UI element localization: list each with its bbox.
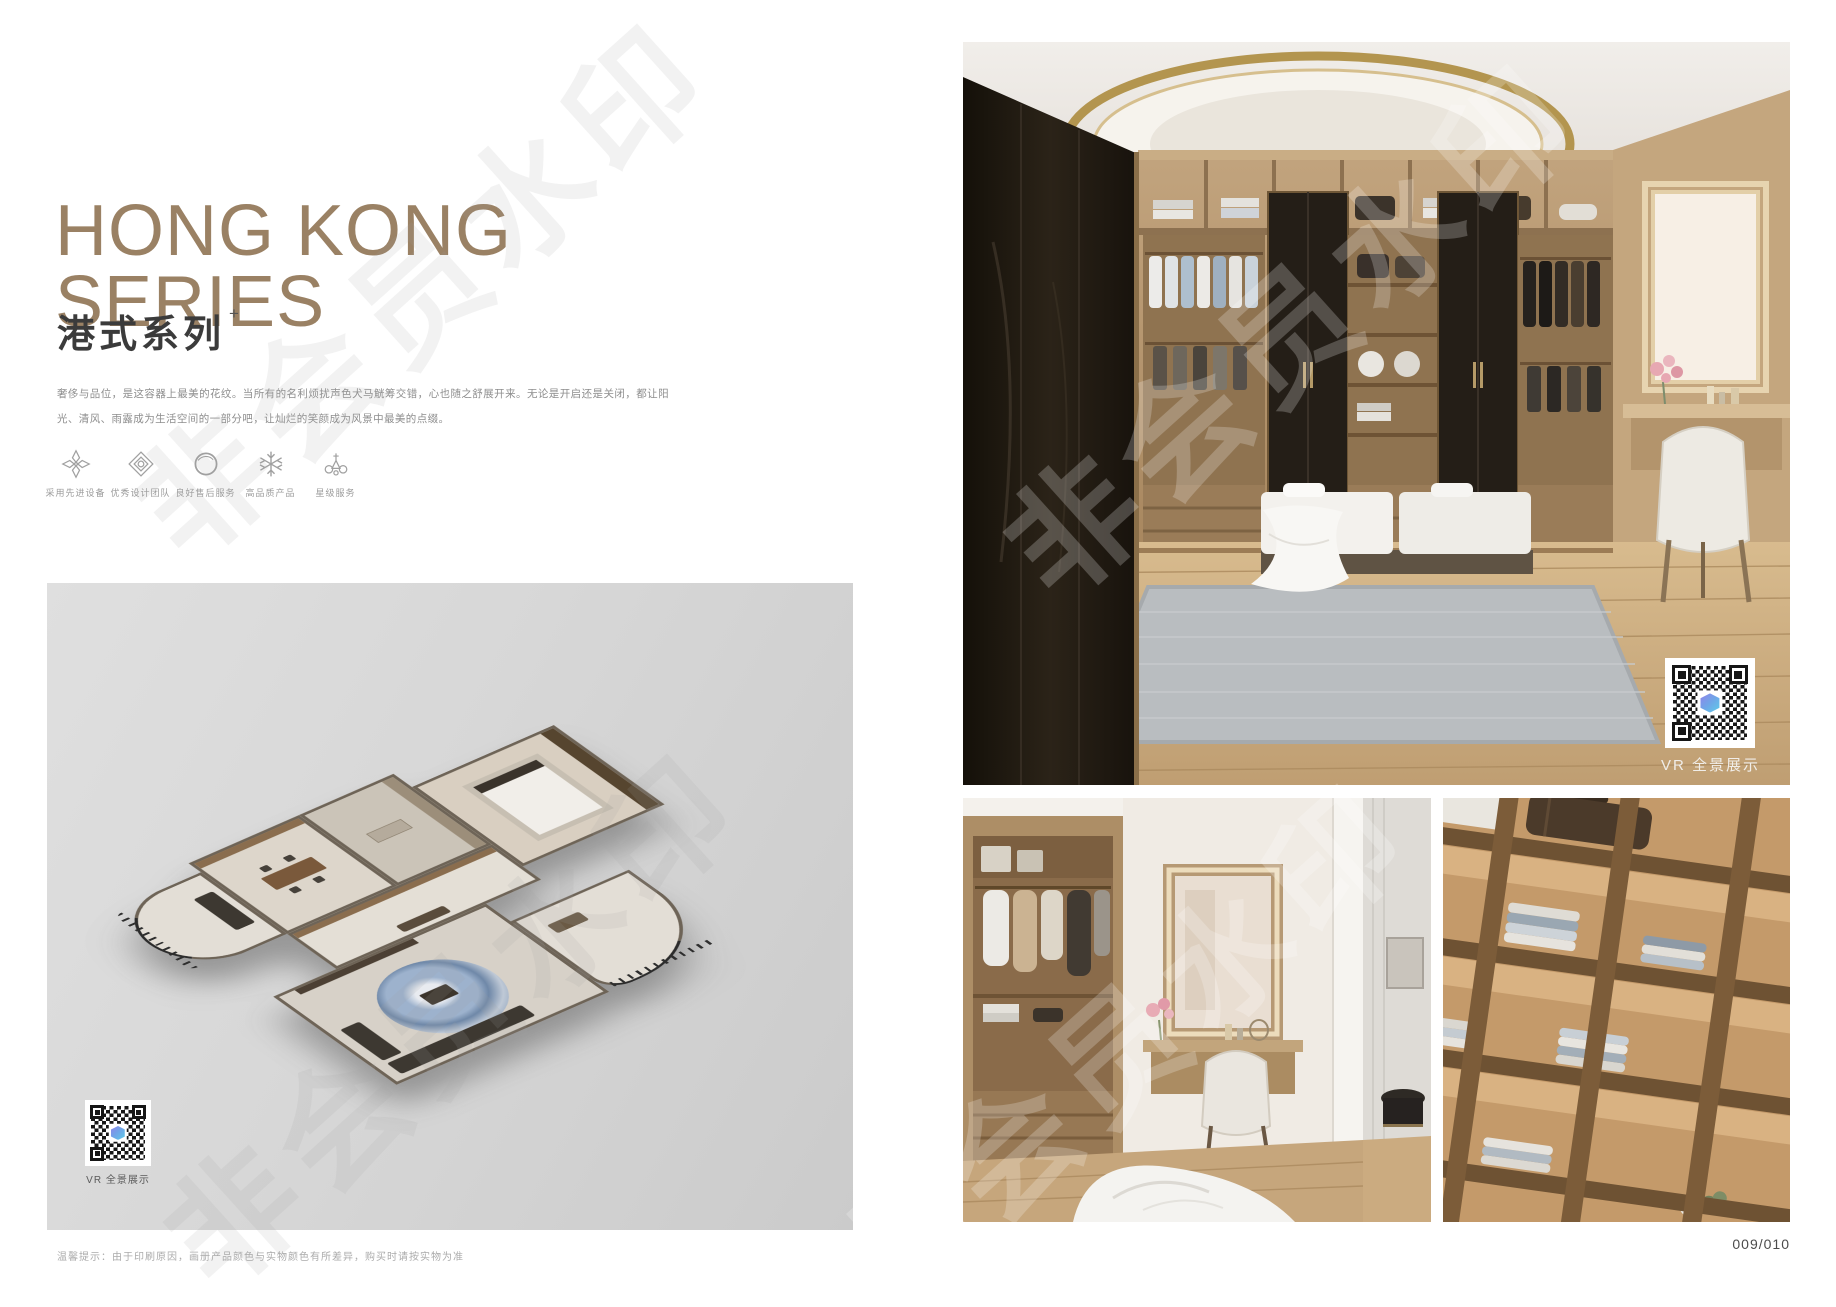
- photo-vanity-corner: [963, 798, 1431, 1222]
- footer-tip: 温馨提示：由于印刷原因，画册产品颜色与实物颜色有所差异，购买时请按实物为准: [57, 1248, 464, 1263]
- feature-after-sales-service: 良好售后服务: [173, 449, 238, 499]
- catalog-page: HONG KONG SERIES 港式系列+ 奢侈与品位，是这容器上最美的花纹。…: [0, 0, 1836, 1307]
- handbag: [1395, 256, 1425, 278]
- feature-label: 采用先进设备: [45, 486, 105, 499]
- dark-glass-wardrobe: [963, 77, 1138, 785]
- isometric-floorplan: [88, 707, 806, 1098]
- closet-drawers: [973, 1091, 1113, 1161]
- feature-list: 采用先进设备 优秀设计团队 良好售后服务 高品质产品: [43, 449, 368, 499]
- hanging-coats: [1523, 261, 1600, 327]
- vr-panorama-label: VR 全景展示: [1661, 754, 1781, 775]
- floorplan-vr-qr-code: [85, 1100, 151, 1166]
- feature-high-quality: 高品质产品: [238, 449, 303, 499]
- balcony-railing: [609, 938, 717, 987]
- shelf-closeup-scene: [1443, 798, 1790, 1222]
- vanity-mirror: [1653, 192, 1758, 382]
- vanity-corner-scene: [963, 798, 1431, 1222]
- feature-label: 良好售后服务: [175, 486, 235, 499]
- feature-label: 高品质产品: [245, 486, 295, 499]
- gallery-vr-qr-code: [1665, 658, 1755, 748]
- feature-label: 星级服务: [315, 486, 355, 499]
- ornament-diamond-icon: [126, 449, 156, 479]
- crown-icon: [321, 449, 351, 479]
- vanity-desk: [1143, 1040, 1303, 1052]
- hanging-shirts: [1149, 256, 1258, 308]
- wood-shelf-grid: [1443, 798, 1790, 1222]
- feature-advanced-equipment: 采用先进设备: [43, 449, 108, 499]
- balcony-railing: [114, 913, 197, 971]
- series-description: 奢侈与品位，是这容器上最美的花纹。当所有的名利烦扰声色犬马觥筹交错，心也随之舒展…: [57, 382, 669, 432]
- title-line-1: HONG KONG: [55, 196, 512, 267]
- vr-panorama-label: VR 全景展示: [75, 1171, 161, 1186]
- feature-label: 优秀设计团队: [110, 486, 170, 499]
- ornament-petal-icon: [61, 449, 91, 479]
- helmet: [1358, 351, 1384, 377]
- wall-art: [1387, 938, 1423, 988]
- photo-walkin-closet: VR 全景展示: [963, 42, 1790, 785]
- handbag: [1357, 254, 1389, 278]
- plus-mark: +: [229, 304, 243, 323]
- series-subtitle: 港式系列+: [57, 303, 243, 358]
- qr-cube-logo-icon: [109, 1124, 127, 1142]
- photo-shelf-closeup: [1443, 798, 1790, 1222]
- floorplan-image: VR 全景展示: [47, 583, 853, 1230]
- qr-cube-logo-icon: [1697, 690, 1722, 715]
- drawers: [1143, 485, 1265, 552]
- vanity-desk: [1623, 404, 1790, 418]
- snowflake-icon: [256, 449, 286, 479]
- helmet: [1394, 351, 1420, 377]
- ring-icon: [191, 449, 221, 479]
- feature-star-service: 星级服务: [303, 449, 368, 499]
- feature-design-team: 优秀设计团队: [108, 449, 173, 499]
- page-number: 009/010: [1690, 1236, 1790, 1252]
